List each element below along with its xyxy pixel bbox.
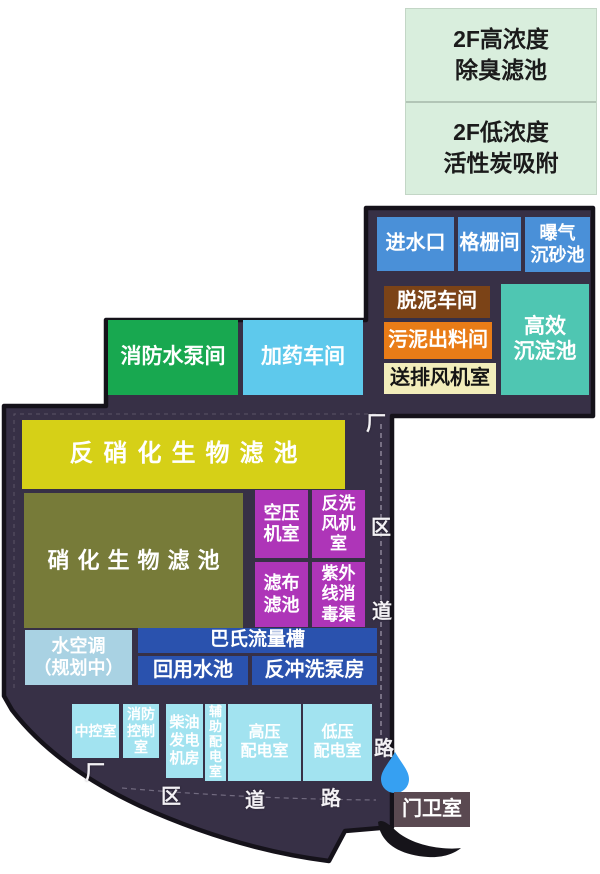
road-label-right-4: 路 [374, 732, 394, 761]
zone-diesel-generator-room: 柴油 发电 机房 [166, 704, 203, 778]
zone-aerated-grit-chamber: 曝气 沉砂池 [525, 217, 590, 272]
zone-reuse-water-pool: 回用水池 [138, 656, 248, 685]
road-label-bottom-3: 道 [245, 784, 265, 813]
zone-central-control-room: 中控室 [72, 704, 119, 758]
zone-auxiliary-power-room: 辅 助 配 电 室 [205, 704, 226, 781]
zone-water-inlet: 进水口 [377, 217, 454, 271]
zone-guard-room: 门卫室 [394, 792, 470, 827]
zone-sludge-discharge: 污泥出料间 [384, 322, 492, 359]
zone-cloth-filter: 滤布 滤池 [255, 562, 308, 627]
road-label-right-2: 区 [371, 511, 391, 540]
zone-water-ac-planned: 水空调 （规划中） [25, 630, 132, 685]
legend-panel: 2F高浓度 除臭滤池 2F低浓度 活性炭吸附 [405, 8, 597, 195]
legend-high-concentration: 2F高浓度 除臭滤池 [406, 9, 596, 101]
site-plan: 2F高浓度 除臭滤池 2F低浓度 活性炭吸附 进水口 格栅间 曝气 沉砂池 脱泥… [0, 0, 600, 874]
legend-low-concentration: 2F低浓度 活性炭吸附 [406, 101, 596, 195]
zone-air-compressor-room: 空压 机室 [255, 490, 308, 558]
zone-dosing-workshop: 加药车间 [243, 320, 363, 395]
zone-backwash-fan-room: 反洗 风机 室 [312, 490, 365, 558]
zone-denitrification-biofilter: 反硝化生物滤池 [22, 420, 345, 489]
zone-nitrification-biofilter: 硝化生物滤池 [24, 493, 243, 628]
zone-fire-pump-room: 消防水泵间 [108, 320, 238, 395]
zone-parshall-flume: 巴氏流量槽 [138, 628, 377, 653]
zone-uv-disinfection-channel: 紫外 线消 毒渠 [312, 562, 365, 627]
road-label-right-3: 道 [372, 595, 392, 624]
road-label-bottom-4: 路 [321, 782, 341, 811]
road-label-bottom-1: 厂 [85, 756, 105, 785]
zone-fire-control-room: 消防 控制 室 [123, 704, 159, 758]
road-label-bottom-2: 区 [161, 780, 181, 809]
zone-sludge-dewatering: 脱泥车间 [384, 286, 490, 318]
zone-lv-power-room: 低压 配电室 [303, 704, 372, 781]
zone-hv-power-room: 高压 配电室 [228, 704, 301, 781]
zone-supply-exhaust-fan-room: 送排风机室 [384, 363, 496, 394]
zone-backwash-pump-house: 反冲洗泵房 [252, 656, 377, 685]
zone-screen-room: 格栅间 [458, 217, 521, 271]
road-label-right-1: 厂 [366, 407, 386, 436]
zone-high-efficiency-sedimentation: 高效 沉淀池 [501, 284, 589, 395]
